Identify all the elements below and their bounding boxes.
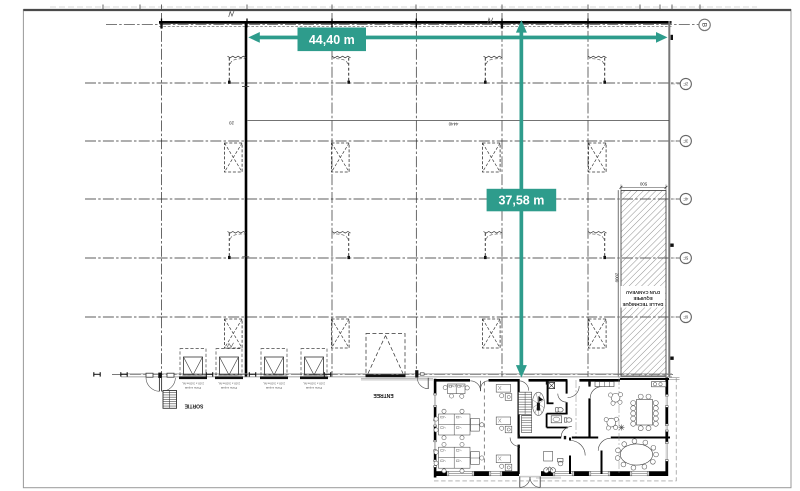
svg-text:500: 500 [639,181,647,186]
svg-text:EQUIPEE: EQUIPEE [633,296,652,301]
svg-text:SORTIE: SORTIE [184,403,203,409]
svg-text:DALLE TECHNIQUE: DALLE TECHNIQUE [622,302,663,307]
svg-text:2000: 2000 [614,273,619,283]
svg-text:2,40 x 2,15 ht: 2,40 x 2,15 ht [447,384,464,388]
svg-text:D'UN CANIVEAU: D'UN CANIVEAU [626,290,660,295]
svg-text:Porte a quai: Porte a quai [266,386,283,390]
svg-text:20: 20 [229,121,234,126]
svg-text:3F: 3F [683,138,688,143]
svg-text:2,00 x 3,00m NL: 2,00 x 3,00m NL [218,382,240,386]
svg-text:ENTREE: ENTREE [373,392,394,398]
svg-text:Porte a quai: Porte a quai [306,386,323,390]
svg-text:44,40 m: 44,40 m [309,33,355,47]
svg-text:5F: 5F [683,255,688,260]
svg-text:6F: 6F [683,314,688,319]
svg-text:B: B [700,23,707,27]
svg-text:2,00 x 3,00m NL: 2,00 x 3,00m NL [263,382,285,386]
svg-text:4440: 4440 [448,122,458,127]
svg-text:Porte a quai: Porte a quai [221,386,238,390]
svg-text:4F: 4F [683,196,688,201]
svg-text:Porte a quai: Porte a quai [185,386,202,390]
svg-text:2,00 x 3,00m NL: 2,00 x 3,00m NL [303,382,325,386]
svg-text:2F: 2F [683,81,688,86]
svg-text:37,58 m: 37,58 m [498,194,544,208]
svg-text:2,00 x 3,00m NL: 2,00 x 3,00m NL [182,382,204,386]
